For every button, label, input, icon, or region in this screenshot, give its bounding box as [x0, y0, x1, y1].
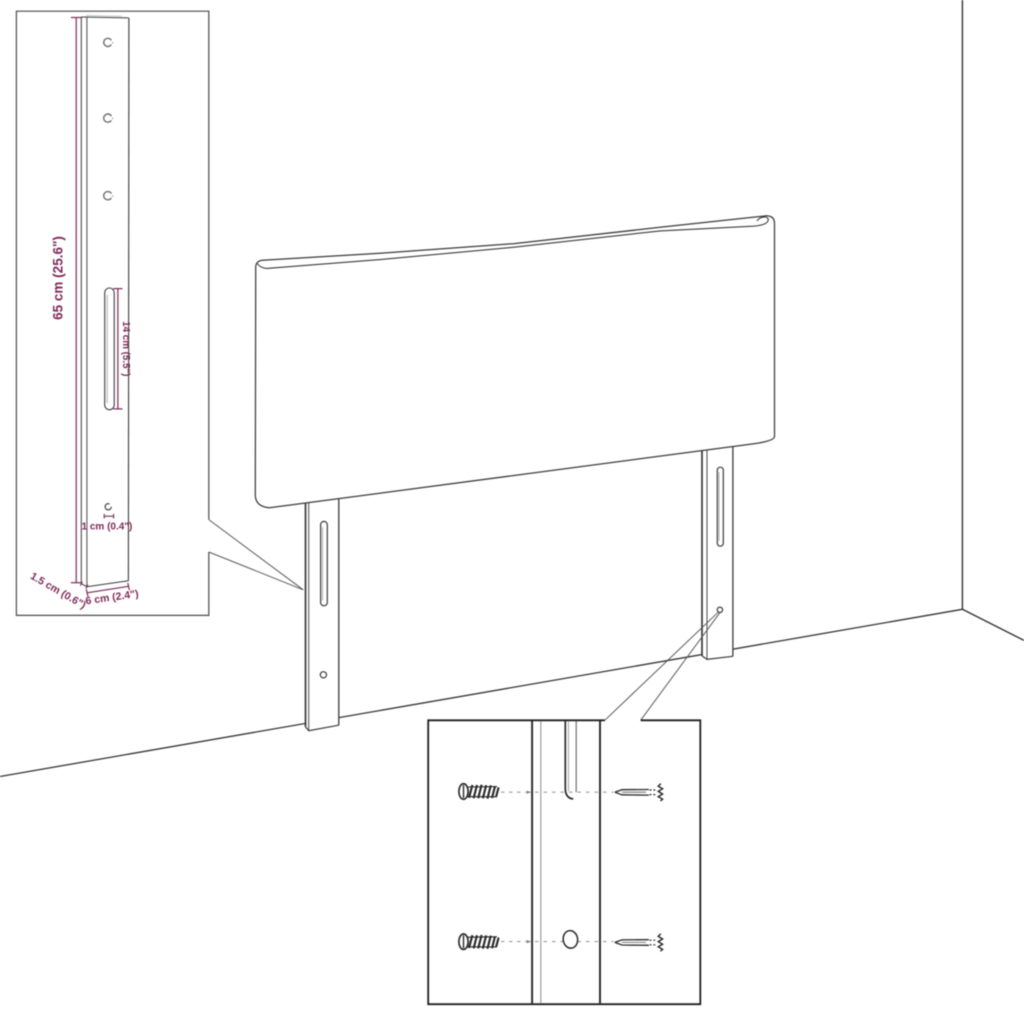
svg-text:65 cm (25.6"): 65 cm (25.6"): [51, 236, 66, 320]
svg-text:1 cm (0.4"): 1 cm (0.4"): [82, 522, 133, 533]
svg-text:14 cm (5.5"): 14 cm (5.5"): [120, 321, 131, 376]
